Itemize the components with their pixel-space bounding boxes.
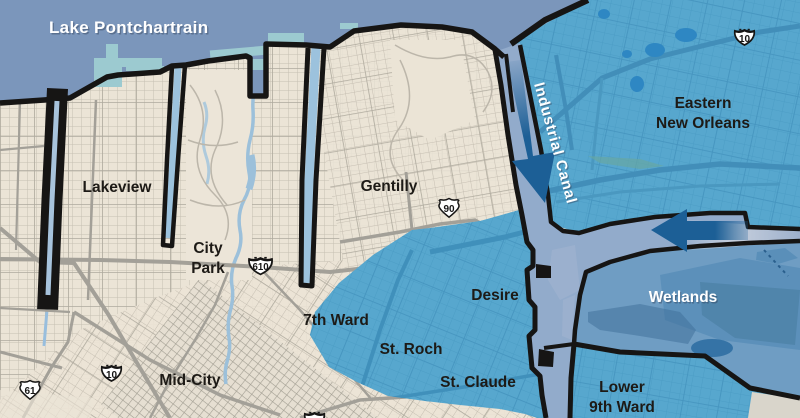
svg-text:Park: Park bbox=[191, 260, 225, 277]
svg-text:Gentilly: Gentilly bbox=[361, 178, 418, 195]
svg-text:Wetlands: Wetlands bbox=[649, 289, 718, 306]
svg-text:Eastern: Eastern bbox=[675, 95, 732, 112]
svg-text:61: 61 bbox=[24, 386, 36, 397]
svg-text:Desire: Desire bbox=[471, 287, 519, 304]
svg-text:Mid-City: Mid-City bbox=[159, 372, 221, 389]
svg-text:St. Claude: St. Claude bbox=[440, 374, 516, 391]
svg-text:Lower: Lower bbox=[599, 379, 645, 396]
svg-text:10: 10 bbox=[739, 34, 751, 45]
svg-text:90: 90 bbox=[443, 204, 455, 215]
svg-text:10: 10 bbox=[106, 370, 118, 381]
svg-text:Lakeview: Lakeview bbox=[83, 179, 153, 196]
svg-text:9th Ward: 9th Ward bbox=[589, 399, 655, 416]
svg-text:St. Roch: St. Roch bbox=[380, 341, 443, 358]
svg-text:Lake Pontchartrain: Lake Pontchartrain bbox=[49, 18, 208, 37]
svg-text:New Orleans: New Orleans bbox=[656, 115, 750, 132]
svg-text:City: City bbox=[193, 240, 223, 257]
svg-text:7th Ward: 7th Ward bbox=[303, 312, 369, 329]
svg-text:610: 610 bbox=[252, 262, 268, 273]
